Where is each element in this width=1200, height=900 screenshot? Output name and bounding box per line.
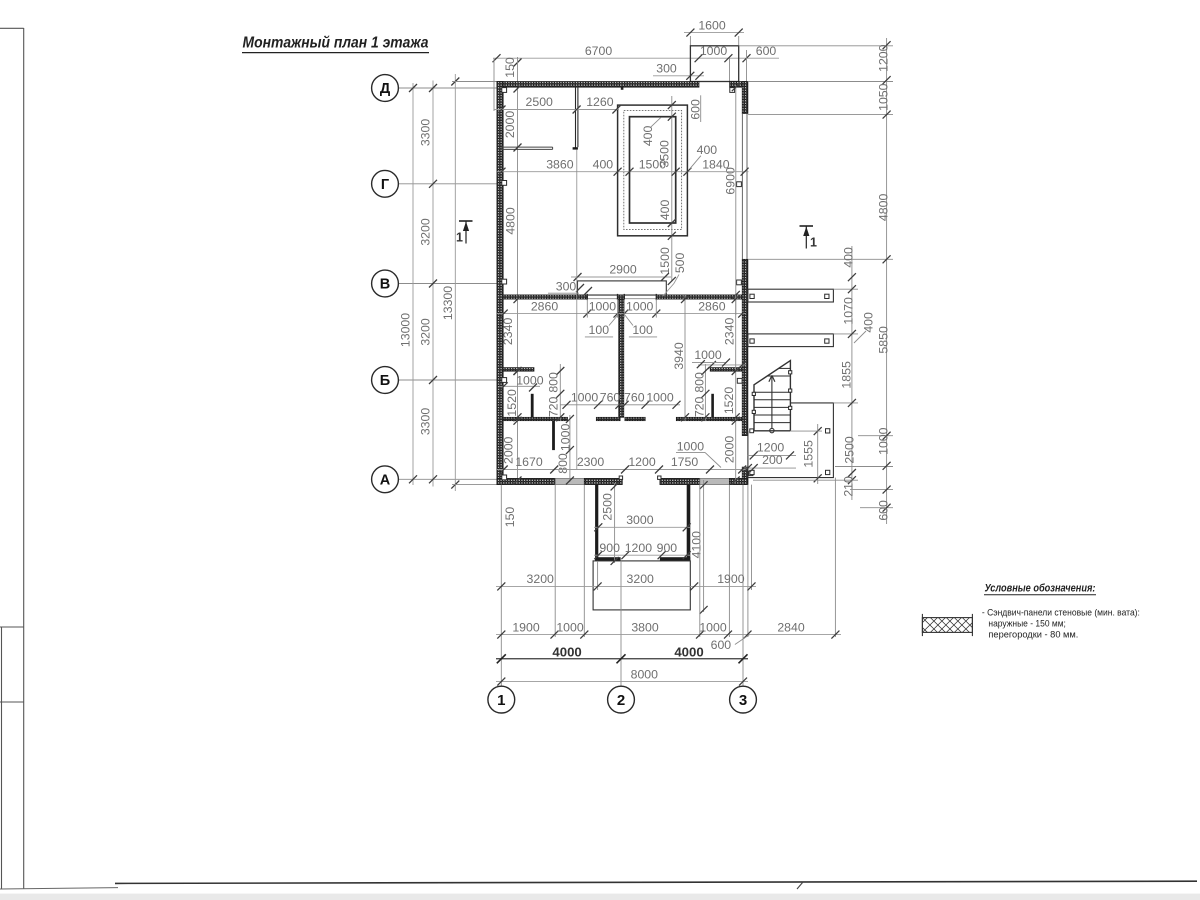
svg-text:1050: 1050	[876, 83, 890, 111]
svg-text:перегородки - 80 мм.: перегородки - 80 мм.	[988, 630, 1078, 641]
svg-text:1070: 1070	[842, 297, 856, 325]
svg-text:1000: 1000	[677, 440, 705, 454]
svg-text:600: 600	[711, 638, 732, 652]
svg-text:210: 210	[841, 476, 855, 497]
svg-text:1520: 1520	[505, 389, 519, 417]
svg-text:2500: 2500	[843, 436, 857, 464]
svg-text:1000: 1000	[556, 620, 584, 634]
svg-text:4000: 4000	[674, 644, 703, 659]
svg-text:600: 600	[876, 500, 890, 521]
svg-text:1000: 1000	[516, 373, 544, 387]
svg-text:900: 900	[657, 541, 678, 555]
svg-text:1200: 1200	[628, 455, 656, 469]
svg-text:4800: 4800	[503, 207, 517, 235]
svg-text:400: 400	[842, 247, 856, 268]
svg-text:3200: 3200	[627, 572, 655, 586]
svg-text:Условные обозначения:: Условные обозначения:	[985, 583, 1096, 595]
svg-text:1: 1	[497, 692, 505, 709]
svg-text:300: 300	[656, 62, 677, 76]
svg-text:2500: 2500	[600, 493, 614, 521]
svg-text:13000: 13000	[399, 313, 413, 347]
svg-text:1000: 1000	[694, 348, 722, 362]
svg-text:4000: 4000	[552, 644, 581, 659]
svg-text:2340: 2340	[722, 318, 736, 346]
svg-text:8000: 8000	[631, 667, 659, 681]
svg-text:3: 3	[739, 692, 747, 709]
svg-text:2860: 2860	[698, 299, 726, 313]
svg-text:500: 500	[673, 252, 687, 273]
svg-text:2000: 2000	[502, 436, 516, 464]
svg-text:наружные - 150 мм;: наружные - 150 мм;	[988, 619, 1066, 630]
svg-text:2: 2	[617, 692, 625, 709]
svg-text:400: 400	[641, 125, 655, 146]
svg-text:1555: 1555	[801, 440, 815, 468]
svg-text:3200: 3200	[419, 318, 433, 346]
svg-text:400: 400	[862, 312, 876, 333]
svg-text:1500: 1500	[658, 247, 672, 275]
svg-text:150: 150	[503, 507, 517, 528]
svg-text:Г: Г	[381, 177, 389, 193]
svg-text:1750: 1750	[671, 455, 699, 469]
svg-text:3000: 3000	[626, 513, 654, 527]
svg-text:1600: 1600	[698, 18, 726, 32]
svg-text:800: 800	[556, 453, 570, 474]
svg-text:5850: 5850	[876, 326, 890, 354]
svg-text:2860: 2860	[531, 299, 559, 313]
svg-text:1000: 1000	[646, 391, 674, 405]
svg-text:2000: 2000	[503, 111, 517, 139]
svg-text:720: 720	[546, 396, 560, 417]
svg-text:400: 400	[697, 143, 718, 157]
svg-text:6700: 6700	[585, 44, 613, 58]
svg-text:2900: 2900	[609, 263, 637, 277]
svg-text:В: В	[380, 277, 390, 293]
svg-text:Д: Д	[380, 81, 391, 97]
svg-text:2840: 2840	[777, 620, 805, 634]
svg-text:А: А	[380, 473, 391, 489]
svg-text:3200: 3200	[419, 218, 433, 246]
svg-text:1900: 1900	[717, 572, 745, 586]
svg-text:900: 900	[599, 541, 620, 555]
svg-text:Монтажный план 1 этажа: Монтажный план 1 этажа	[243, 35, 429, 52]
svg-text:720: 720	[692, 396, 706, 417]
svg-text:800: 800	[692, 372, 706, 393]
svg-text:1200: 1200	[625, 541, 653, 555]
svg-text:1: 1	[456, 231, 463, 245]
svg-text:150: 150	[503, 57, 517, 78]
svg-text:1520: 1520	[722, 387, 736, 415]
svg-text:400: 400	[593, 157, 614, 171]
svg-text:1000: 1000	[699, 620, 727, 634]
svg-text:1000: 1000	[571, 391, 599, 405]
svg-text:13300: 13300	[441, 286, 455, 320]
svg-text:800: 800	[546, 372, 560, 393]
svg-text:1900: 1900	[512, 620, 540, 634]
svg-text:760: 760	[624, 391, 645, 405]
svg-text:760: 760	[600, 391, 621, 405]
svg-text:2500: 2500	[526, 95, 554, 109]
svg-text:1200: 1200	[876, 44, 890, 72]
svg-text:200: 200	[762, 453, 783, 467]
svg-text:100: 100	[632, 323, 653, 337]
svg-text:1000: 1000	[626, 299, 654, 313]
svg-text:2000: 2000	[722, 436, 736, 464]
svg-text:3860: 3860	[546, 157, 574, 171]
svg-text:1840: 1840	[702, 157, 730, 171]
svg-text:300: 300	[556, 279, 577, 293]
svg-text:3800: 3800	[631, 620, 659, 634]
svg-text:3940: 3940	[672, 342, 686, 370]
svg-text:1260: 1260	[586, 95, 614, 109]
svg-text:3300: 3300	[419, 408, 433, 436]
svg-text:2300: 2300	[577, 455, 605, 469]
svg-text:3200: 3200	[527, 572, 555, 586]
svg-text:1500: 1500	[639, 157, 667, 171]
svg-text:1000: 1000	[559, 424, 573, 452]
svg-text:600: 600	[688, 99, 702, 120]
svg-text:3300: 3300	[419, 119, 433, 147]
svg-text:100: 100	[589, 323, 610, 337]
svg-text:Б: Б	[380, 373, 390, 389]
svg-text:4100: 4100	[689, 531, 703, 559]
svg-text:1000: 1000	[589, 299, 617, 313]
svg-text:4800: 4800	[876, 194, 890, 222]
svg-text:400: 400	[658, 199, 672, 220]
svg-text:1000: 1000	[876, 427, 890, 455]
svg-text:- Сэндвич-панели стеновые (мин: - Сэндвич-панели стеновые (мин. вата):	[982, 608, 1140, 619]
svg-text:2340: 2340	[501, 318, 515, 346]
svg-text:1855: 1855	[840, 361, 854, 389]
svg-text:1: 1	[810, 236, 817, 250]
svg-text:1670: 1670	[515, 455, 543, 469]
